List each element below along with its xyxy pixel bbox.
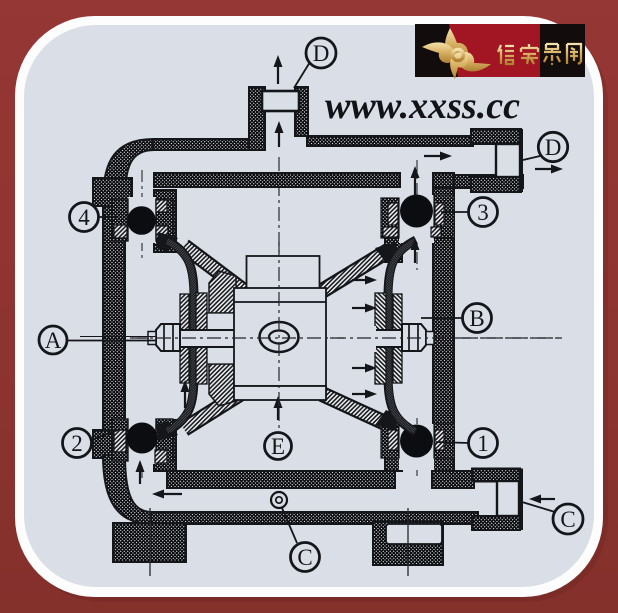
svg-text:D: D — [313, 41, 330, 66]
svg-text:D: D — [545, 135, 562, 160]
svg-text:4: 4 — [78, 205, 90, 230]
svg-text:E: E — [271, 434, 285, 459]
svg-text:A: A — [45, 328, 62, 353]
svg-text:1: 1 — [477, 431, 489, 456]
svg-text:C: C — [297, 545, 312, 570]
svg-text:2: 2 — [71, 431, 83, 456]
svg-text:C: C — [560, 507, 575, 532]
svg-text:3: 3 — [477, 200, 489, 225]
svg-text:B: B — [469, 306, 484, 331]
svg-text:www.xxss.cc: www.xxss.cc — [325, 85, 520, 127]
